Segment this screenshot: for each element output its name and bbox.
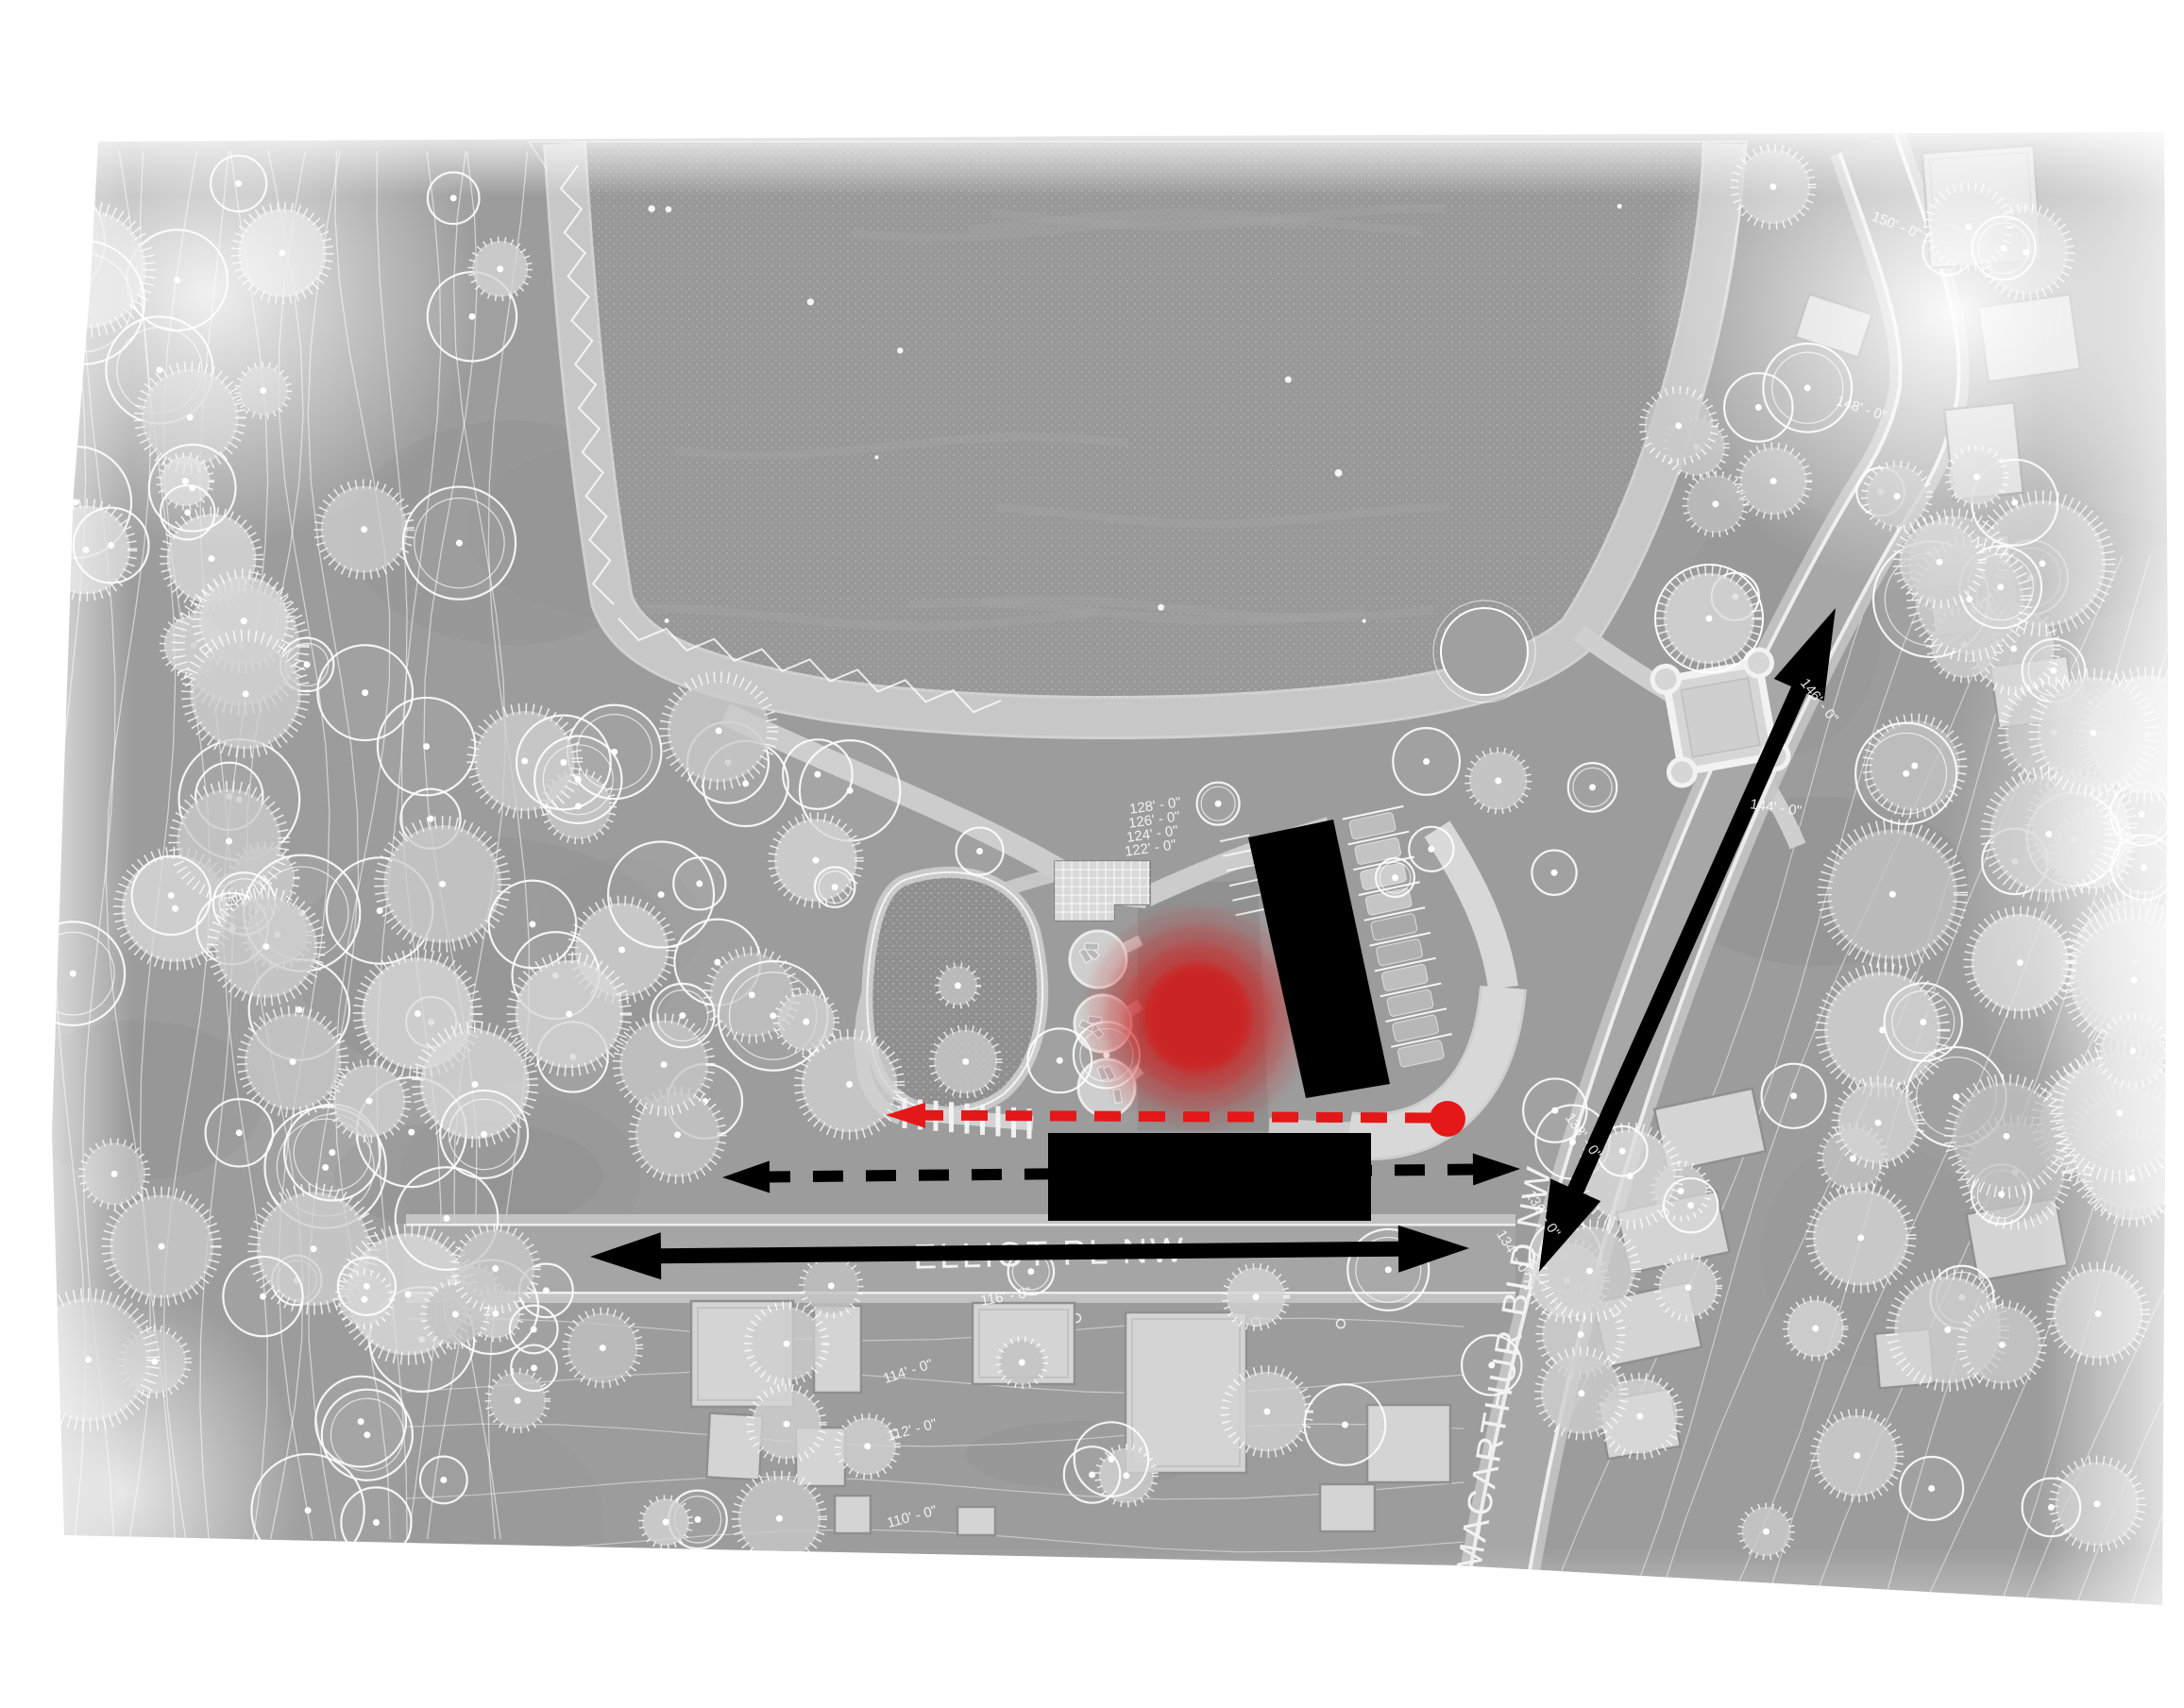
house-footprint	[835, 1496, 871, 1533]
site-plan-page: ELLIOT PL NW MACARTHUR BLD NW 150' - 0"1…	[0, 0, 2184, 1708]
tree	[21, 241, 144, 364]
house-footprint	[957, 1507, 995, 1535]
house-footprint	[1320, 1484, 1375, 1531]
route-origin-dot	[1430, 1101, 1465, 1137]
house-footprint	[1978, 295, 2080, 382]
site-plan-map: ELLIOT PL NW MACARTHUR BLD NW 150' - 0"1…	[0, 0, 2184, 1708]
reservoir-cove-circle	[1441, 608, 1528, 695]
tree	[0, 179, 105, 302]
